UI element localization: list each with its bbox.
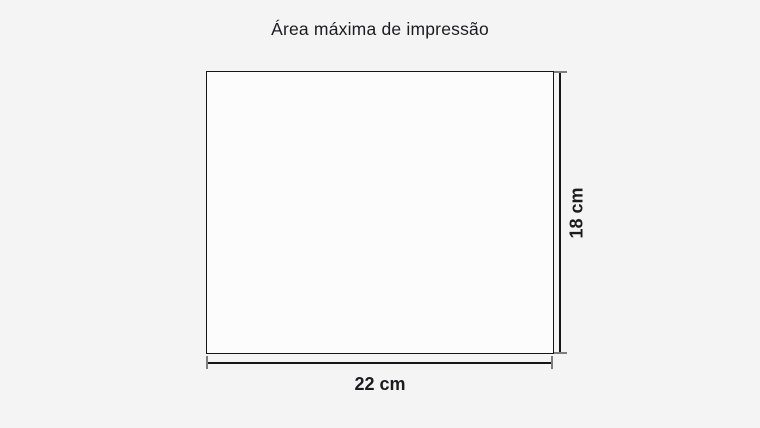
height-dimension-label: 18 cm <box>567 187 588 238</box>
diagram-canvas: Área máxima de impressão 18 cm 22 cm <box>0 0 760 428</box>
width-dimension-left-tick <box>206 356 208 369</box>
width-dimension-line <box>207 362 553 364</box>
print-area-rectangle <box>206 71 554 354</box>
width-dimension-right-tick <box>551 356 553 369</box>
height-dimension-line <box>559 72 561 353</box>
height-dimension-bottom-tick <box>554 352 567 354</box>
width-dimension-label: 22 cm <box>207 374 553 395</box>
page-title: Área máxima de impressão <box>0 19 760 40</box>
height-dimension-top-tick <box>554 71 567 73</box>
